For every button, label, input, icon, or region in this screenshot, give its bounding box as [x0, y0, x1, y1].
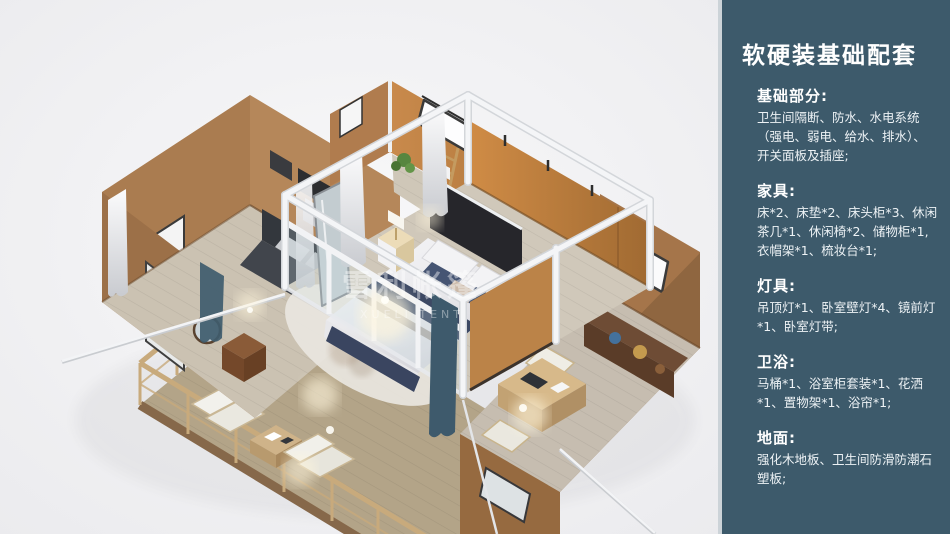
floor-plan-svg: 雪利帐篷 XUELI TENT — [0, 0, 718, 534]
info-panel: 软硬装基础配套 基础部分: 卫生间隔断、防水、水电系统（强电、弱电、给水、排水）… — [718, 0, 950, 534]
section-lighting-body: 吊顶灯*1、卧室壁灯*4、镜前灯*1、卧室灯带; — [757, 298, 938, 336]
section-basics: 基础部分: 卫生间隔断、防水、水电系统（强电、弱电、给水、排水）、开关面板及插座… — [757, 85, 938, 165]
watermark-cn: 雪利帐篷 — [342, 269, 482, 304]
floor-plan-render: 雪利帐篷 XUELI TENT — [0, 0, 718, 534]
teal-curtain-left — [200, 262, 224, 343]
section-bathroom: 卫浴: 马桶*1、浴室柜套装*1、花洒*1、置物架*1、浴帘*1; — [757, 351, 938, 412]
section-basics-heading: 基础部分: — [757, 85, 938, 106]
section-flooring-body: 强化木地板、卫生间防滑防潮石塑板; — [757, 450, 938, 488]
section-furniture-body: 床*2、床垫*2、床头柜*3、休闲茶几*1、休闲椅*2、储物柜*1,衣帽架*1、… — [757, 203, 938, 260]
section-bathroom-heading: 卫浴: — [757, 351, 938, 372]
section-flooring: 地面: 强化木地板、卫生间防滑防潮石塑板; — [757, 427, 938, 488]
watermark-en: XUELI TENT — [360, 308, 464, 321]
white-curtain-corner — [108, 189, 128, 297]
section-lighting-heading: 灯具: — [757, 275, 938, 296]
section-flooring-heading: 地面: — [757, 427, 938, 448]
panel-title: 软硬装基础配套 — [742, 36, 938, 70]
section-furniture: 家具: 床*2、床垫*2、床头柜*3、休闲茶几*1、休闲椅*2、储物柜*1,衣帽… — [757, 180, 938, 260]
watermark: 雪利帐篷 XUELI TENT — [342, 269, 482, 321]
section-furniture-heading: 家具: — [757, 180, 938, 201]
section-bathroom-body: 马桶*1、浴室柜套装*1、花洒*1、置物架*1、浴帘*1; — [757, 374, 938, 412]
slide: 雪利帐篷 XUELI TENT 软硬装基础配套 基础部分: 卫生间隔断、防水、水… — [0, 0, 950, 534]
section-lighting: 灯具: 吊顶灯*1、卧室壁灯*4、镜前灯*1、卧室灯带; — [757, 275, 938, 336]
section-basics-body: 卫生间隔断、防水、水电系统（强电、弱电、给水、排水）、开关面板及插座; — [757, 108, 938, 165]
